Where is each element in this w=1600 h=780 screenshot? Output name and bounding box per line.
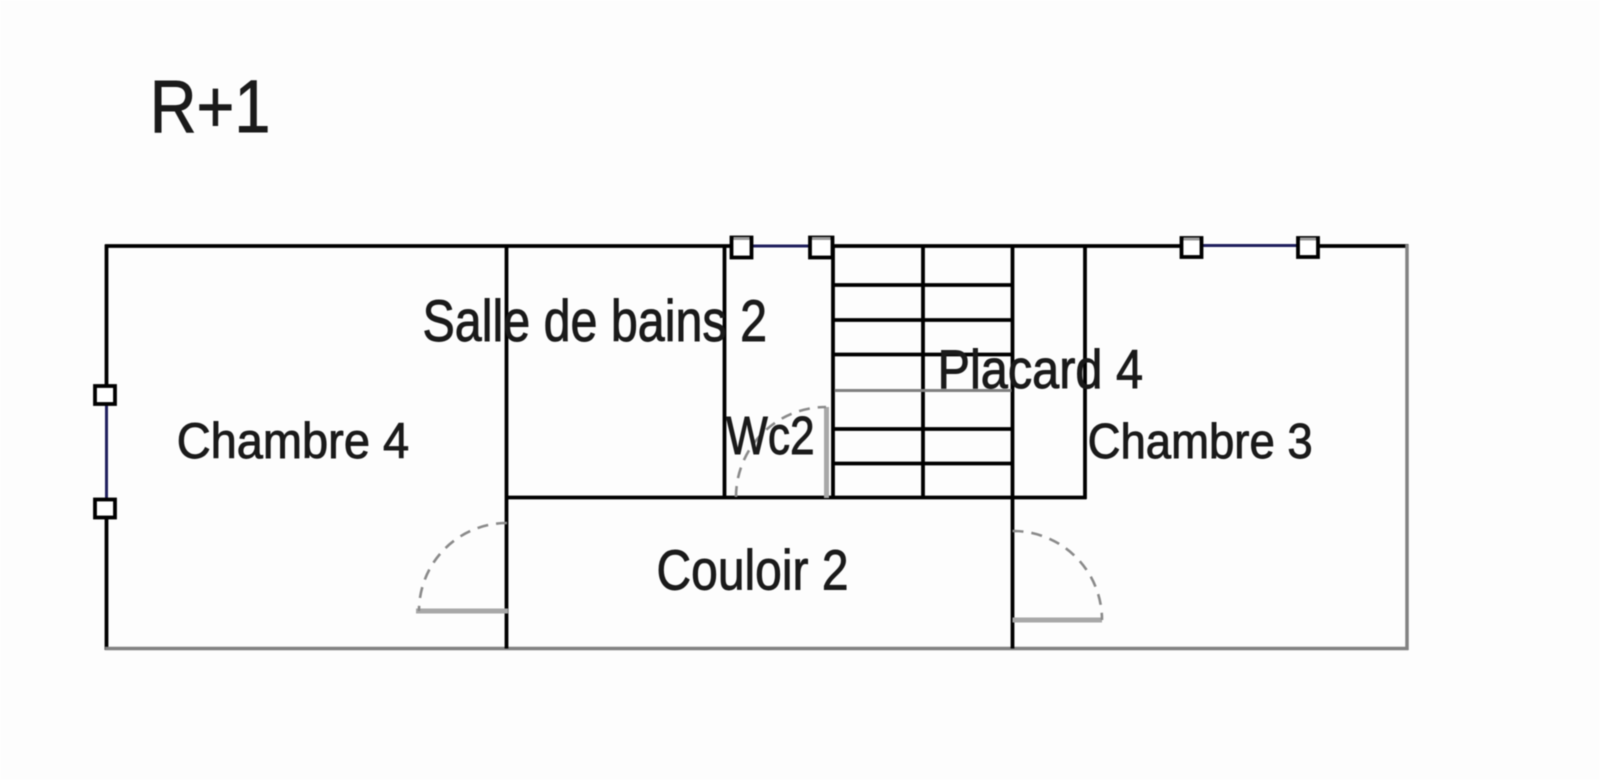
svg-text:Chambre 3: Chambre 3 (1088, 414, 1313, 469)
svg-text:Placard 4: Placard 4 (938, 339, 1144, 400)
svg-text:Couloir 2: Couloir 2 (657, 539, 849, 603)
svg-text:Chambre 4: Chambre 4 (177, 414, 409, 470)
svg-text:R+1: R+1 (150, 65, 271, 148)
svg-text:Salle de bains 2: Salle de bains 2 (423, 290, 767, 354)
svg-text:Wc2: Wc2 (726, 406, 815, 466)
